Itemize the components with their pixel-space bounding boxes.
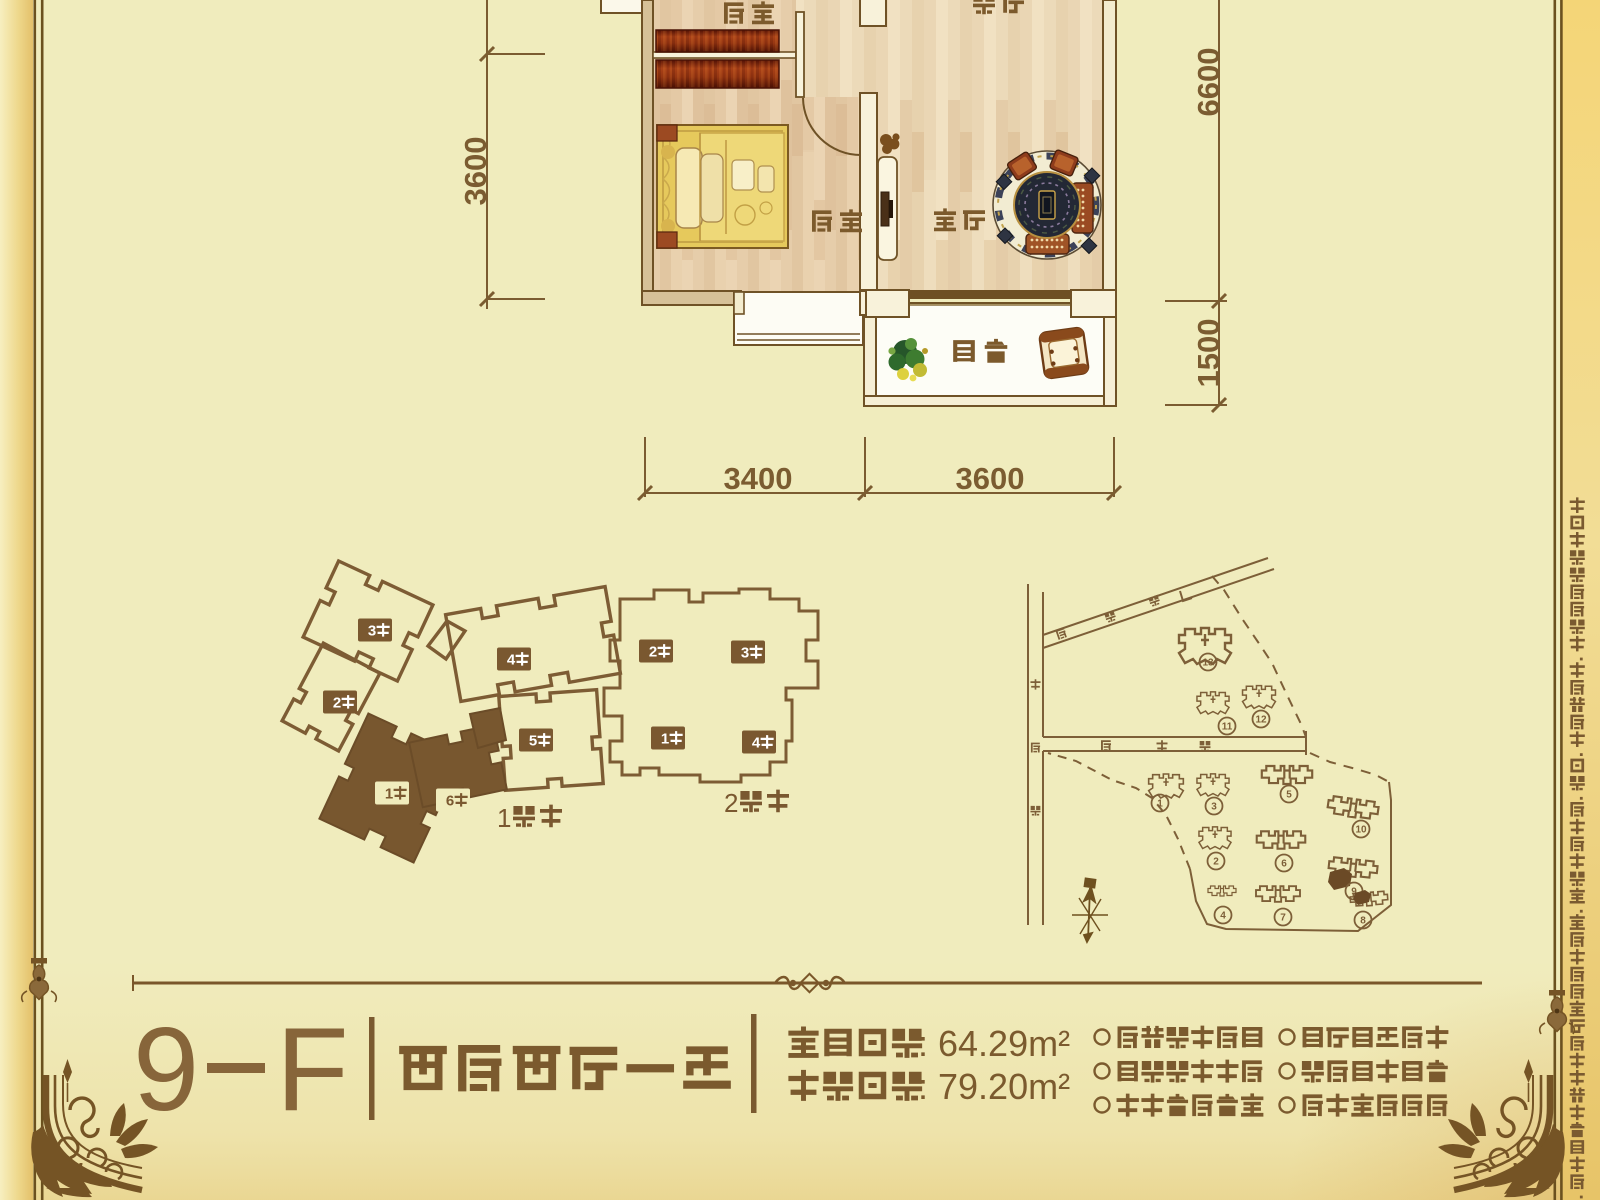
svg-text:2: 2 bbox=[1213, 856, 1219, 867]
svg-text:1: 1 bbox=[497, 803, 511, 833]
svg-text:9: 9 bbox=[133, 1003, 199, 1136]
svg-text:4: 4 bbox=[752, 734, 761, 751]
svg-text:4: 4 bbox=[507, 651, 516, 668]
svg-text:12: 12 bbox=[1255, 714, 1267, 725]
svg-text:3600: 3600 bbox=[956, 461, 1025, 496]
svg-text:11: 11 bbox=[1222, 721, 1233, 732]
svg-text:F: F bbox=[276, 1003, 349, 1136]
svg-text:7: 7 bbox=[1280, 912, 1286, 923]
svg-text:2: 2 bbox=[649, 643, 657, 660]
svg-text:1500: 1500 bbox=[1191, 319, 1226, 388]
svg-text:: 79.20m²: : 79.20m² bbox=[918, 1066, 1070, 1107]
svg-text:1: 1 bbox=[1157, 798, 1163, 809]
svg-text:10: 10 bbox=[1355, 824, 1367, 835]
svg-text:3: 3 bbox=[368, 622, 376, 639]
svg-text:4: 4 bbox=[1220, 910, 1226, 921]
svg-text:3400: 3400 bbox=[724, 461, 793, 496]
svg-text:6: 6 bbox=[446, 792, 454, 809]
svg-text:8: 8 bbox=[1360, 915, 1366, 926]
svg-text:2: 2 bbox=[333, 694, 341, 711]
svg-text:5: 5 bbox=[1286, 789, 1292, 800]
svg-text:3600: 3600 bbox=[458, 137, 493, 206]
svg-text:: 64.29m²: : 64.29m² bbox=[918, 1023, 1070, 1064]
svg-text:13: 13 bbox=[1202, 657, 1214, 668]
svg-text:1: 1 bbox=[661, 730, 669, 747]
svg-text:6: 6 bbox=[1281, 858, 1287, 869]
svg-text:2: 2 bbox=[724, 788, 738, 818]
svg-text:1: 1 bbox=[385, 785, 393, 802]
svg-text:5: 5 bbox=[529, 732, 537, 749]
svg-text:6600: 6600 bbox=[1191, 48, 1226, 117]
svg-text:3: 3 bbox=[1211, 801, 1217, 812]
svg-text:3: 3 bbox=[741, 644, 749, 661]
